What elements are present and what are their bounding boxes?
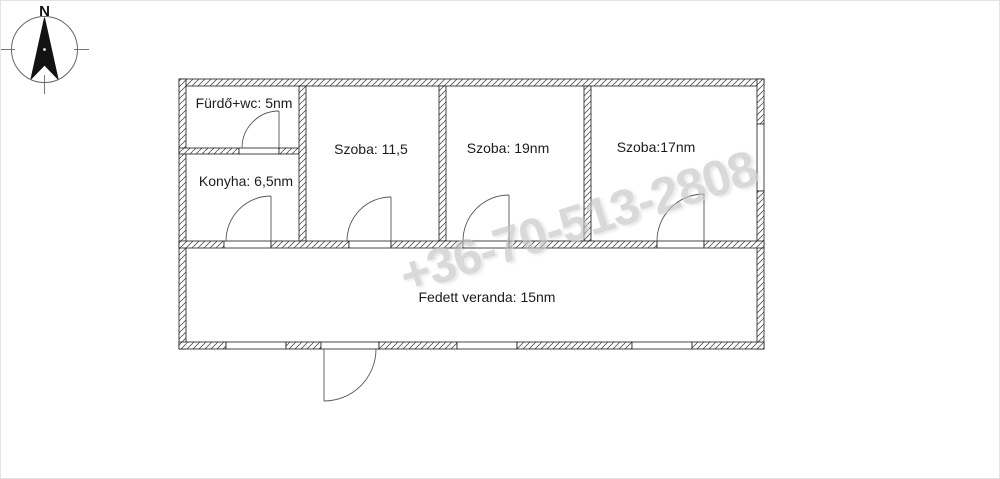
wall-right-lower: [757, 191, 764, 349]
wall-bottom-4: [517, 342, 632, 349]
wall-left: [179, 79, 186, 349]
label-kitchen: Konyha: 6,5nm: [199, 173, 293, 189]
wall-top: [179, 79, 764, 86]
door-opening-room2: [463, 241, 509, 248]
door-room1: [347, 197, 391, 241]
floor-plan-drawing: N: [1, 1, 1000, 479]
label-room2: Szoba: 19nm: [467, 140, 550, 156]
door-kitchen: [226, 196, 271, 241]
compass-center-dot: [43, 48, 46, 51]
wall-bath-kitchen-left: [179, 148, 239, 154]
label-bathroom: Fürdő+wc: 5nm: [196, 95, 293, 111]
window-right-wall: [757, 124, 764, 191]
door-arc-room1: [347, 197, 391, 241]
partition-room2-room3: [584, 86, 591, 241]
door-arc-kitchen: [226, 196, 271, 241]
label-room3: Szoba:17nm: [617, 139, 696, 155]
wall-veranda-top-4: [509, 241, 657, 248]
label-room1: Szoba: 11,5: [334, 141, 408, 157]
wall-bottom-1: [179, 342, 226, 349]
wall-veranda-top-1: [179, 241, 224, 248]
partition-kitchen-room1: [299, 86, 306, 241]
compass-rose: N: [1, 3, 89, 94]
wall-bottom-5: [692, 342, 764, 349]
floor-plan-page: N: [0, 0, 1000, 479]
door-opening-veranda: [321, 342, 379, 349]
door-arc-bathroom: [242, 111, 279, 148]
door-bathroom: [242, 111, 279, 148]
wall-bottom-3: [379, 342, 457, 349]
wall-right-upper: [757, 79, 764, 124]
door-arc-room3: [657, 194, 704, 241]
wall-bottom-2: [286, 342, 321, 349]
wall-veranda-top-5: [704, 241, 764, 248]
partition-room1-room2: [439, 86, 446, 241]
label-veranda: Fedett veranda: 15nm: [419, 289, 556, 305]
door-arc-room2: [463, 195, 509, 241]
wall-veranda-top-2: [271, 241, 349, 248]
door-room3: [657, 194, 704, 241]
window-veranda-3: [632, 342, 692, 349]
wall-veranda-top-3: [391, 241, 463, 248]
window-veranda-2: [457, 342, 517, 349]
door-room2: [463, 195, 509, 241]
door-opening-kitchen: [224, 241, 271, 248]
door-opening-room3: [657, 241, 704, 248]
door-opening-room1: [349, 241, 391, 248]
door-opening-bathroom: [239, 148, 279, 154]
window-veranda-1: [226, 342, 286, 349]
door-arc-veranda: [324, 349, 376, 401]
door-veranda-entrance: [324, 349, 376, 401]
compass-north-label: N: [39, 3, 50, 20]
